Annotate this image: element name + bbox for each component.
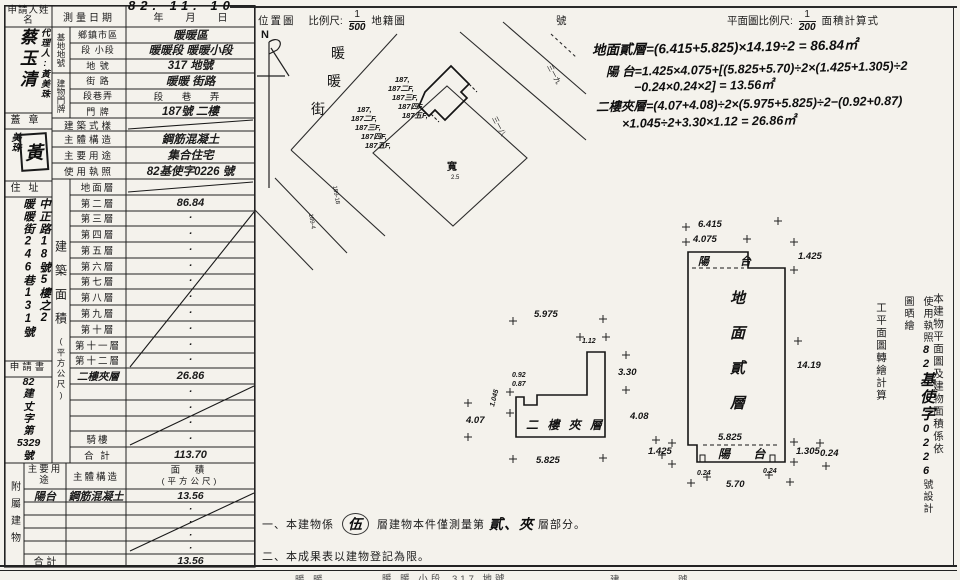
annex-header-use: 主要用途 <box>24 463 66 489</box>
note-1-middle: 層建物本件僅測量第 <box>377 516 485 532</box>
mezzanine-room-label: 二 樓 夾 層 <box>526 418 605 432</box>
area-group-unit: (平方公尺) <box>55 336 67 402</box>
plan-scale-denominator: 200 <box>799 22 816 33</box>
land-rows: 鄉鎮市區 暖暖區 段 小段 暖暖段 暖暖小段 地 號 317 地號 <box>70 27 255 73</box>
area-row: 第十層 · <box>70 321 255 337</box>
info-row: 建築式樣 <box>52 118 255 131</box>
area-row: 合 計 113.70 <box>70 447 255 463</box>
area-row-value: · <box>126 417 255 429</box>
dim-main-left-bottom: 1.425 <box>648 446 672 457</box>
area-row-label: 第八層 <box>70 290 126 304</box>
info-row-label: 使用執照 <box>52 164 126 178</box>
note-1-prefix: 一、本建物係 <box>262 516 334 532</box>
dim-mezz-top: 5.975 <box>534 309 558 320</box>
land-row-value: 317 地號 <box>126 57 255 73</box>
area-row: 第五層 · <box>70 242 255 258</box>
appno-part: 號 <box>23 451 34 462</box>
land-row: 鄉鎮市區 暖暖區 <box>70 27 255 42</box>
area-row-label: 第十一層 <box>70 338 126 352</box>
door-row: 段巷弄 段 巷 弄 <box>70 88 255 103</box>
annex-row-use: 合 計 <box>24 553 66 568</box>
door-row-value: 暖暖 街路 <box>126 73 255 89</box>
door-row-value: 段 巷 弄 <box>126 89 255 103</box>
area-row: 二樓夾層 26.86 <box>70 368 255 384</box>
land-row: 地 號 317 地號 <box>70 58 255 73</box>
area-row: 第九層 · <box>70 305 255 321</box>
door-row-label: 街 路 <box>70 74 126 87</box>
area-row-value: · <box>126 212 255 224</box>
area-row-value: · <box>126 275 255 287</box>
door-rows: 街 路 暖暖 街路 段巷弄 段 巷 弄 門 牌 187號 二樓 <box>70 73 255 118</box>
survey-date-label: 測量日期 <box>52 6 126 26</box>
area-row-value: · <box>126 228 255 240</box>
info-row-label: 建築式樣 <box>52 118 126 132</box>
seal-area: 美珠 黃 <box>5 128 52 180</box>
area-row: 地面層 <box>70 179 255 195</box>
note-1-floor-count: 伍 <box>342 513 369 535</box>
parcel-label: 187五F, <box>365 141 391 150</box>
north-indicator <box>257 40 289 188</box>
main-room-char-4: 層 <box>729 395 747 412</box>
land-row-label: 段 小段 <box>70 43 126 56</box>
survey-form-sheet: 82. 11. 10 測量日期 年 月 日 申請人姓名 代理人:黃美珠 蔡玉清 … <box>0 0 960 580</box>
application-label: 申請書 <box>5 358 52 374</box>
survey-date-value: 年 月 日 <box>126 6 255 26</box>
side-note-col-2: 使用執照82基使字0226號設計圖晒繪 <box>898 296 937 526</box>
area-row-label: 合 計 <box>70 448 126 462</box>
area-row-label: 第十層 <box>70 322 126 336</box>
annex-header-area-line2: (平方公尺) <box>162 477 220 486</box>
calc-line-1: 地面貳層=(6.415+5.825)×14.19÷2 = 86.84㎡ <box>592 33 858 59</box>
strip-fragment-3: 317 地號 <box>452 571 508 580</box>
floor-plans-svg: 6.415 4.075 1.425 14.19 5.825 1.425 1.30… <box>460 185 860 515</box>
annex-row-area: 13.56 <box>126 490 255 502</box>
dim-mezz-n2: 0.87 <box>512 381 527 388</box>
street-char-2: 暖 <box>327 73 341 89</box>
map-annotation-e: 189-4 <box>307 213 316 230</box>
main-room-char-1: 地 <box>730 290 747 307</box>
annex-row: · <box>24 528 255 541</box>
side-note-year: 82 <box>920 344 932 372</box>
area-row: 騎樓 · <box>70 431 255 447</box>
area-row: 第十一層 · <box>70 337 255 353</box>
note-1-suffix: 層部分。 <box>538 516 586 532</box>
annex-row: · <box>24 502 255 515</box>
main-room-char-3: 貳 <box>729 360 748 377</box>
area-row: 第六層 · <box>70 258 255 274</box>
dim-mezz-left: 4.07 <box>465 415 485 426</box>
door-row-value: 187號 二樓 <box>126 103 255 119</box>
area-row-value: · <box>126 354 255 366</box>
annex-row: 合 計 13.56 <box>24 554 255 567</box>
parcel-label: 187, <box>357 105 372 114</box>
area-row-value: · <box>126 402 255 414</box>
dim-main-top2: 4.075 <box>692 234 717 245</box>
annex-row-area: · <box>126 516 255 528</box>
strip-fragment-2: 暖 暖 小段 <box>382 571 443 580</box>
applicant-name-area: 代理人:黃美珠 蔡玉清 <box>6 28 52 112</box>
area-row: · <box>70 400 255 416</box>
plan-scale-label: 平面圖比例尺: <box>727 15 793 27</box>
annex-row-area: · <box>126 542 255 554</box>
land-row-value: 暖暖段 暖暖小段 <box>126 42 255 58</box>
strip-fragment-5: 號 <box>678 572 691 580</box>
parcel-label: 187二F, <box>351 114 377 123</box>
area-row: 第八層 · <box>70 289 255 305</box>
info-row: 主要用途 集合住宅 <box>52 147 255 163</box>
area-row-value: · <box>126 433 255 445</box>
area-row-label: 第九層 <box>70 306 126 320</box>
main-floor-outline <box>688 252 785 462</box>
area-row-value: · <box>126 307 255 319</box>
dim-main-top: 6.415 <box>698 219 722 230</box>
plan-scale-header: 平面圖比例尺: 1 200 面積計算式 <box>727 10 879 33</box>
area-row-value: 86.84 <box>126 197 255 209</box>
info-row-value: 82基使字0226 號 <box>126 163 255 179</box>
parcel-label: 187五F, <box>402 111 428 120</box>
land-row-value: 暖暖區 <box>126 27 255 43</box>
area-row-value: · <box>126 339 255 351</box>
annex-row-area: · <box>126 529 255 541</box>
map-annotation-d: 189-18 <box>331 185 340 205</box>
area-row: · <box>70 415 255 431</box>
dim-mezz-bottom: 5.825 <box>536 455 560 466</box>
date-month-char: 月 <box>186 9 196 24</box>
address-area: 中正路18號5樓之2 暖暖街246巷131號 <box>6 198 52 354</box>
area-row-label: 第五層 <box>70 243 126 257</box>
seal-stamp: 黃 <box>19 132 50 172</box>
street-char-3: 街 <box>311 101 325 117</box>
annex-header-structure: 主體構造 <box>66 463 126 489</box>
plan-calc-label: 面積計算式 <box>821 15 879 27</box>
annex-row-area: · <box>126 503 255 515</box>
area-row-label: 第二層 <box>70 196 126 210</box>
door-group-label: 建物門牌 <box>52 73 70 118</box>
annex-header-area: 面 積 (平方公尺) <box>126 463 255 489</box>
side-note-license: 使用執照 <box>921 296 932 344</box>
parcel-label: 187三F, <box>355 123 381 132</box>
area-row-value: · <box>126 291 255 303</box>
area-rows: 地面層 第二層 86.84 第三層 · 第四層 · 第五層 · <box>70 179 255 463</box>
map-annotation-b: 三一八 <box>490 115 507 137</box>
dim-main-right-top: 1.425 <box>798 251 822 262</box>
area-row-label: 第六層 <box>70 259 126 273</box>
info-row-label: 主要用途 <box>52 148 126 162</box>
area-row-value: · <box>126 260 255 272</box>
sheet-right-border <box>953 6 954 567</box>
appno-part: 第 <box>23 426 34 437</box>
address-line-2: 暖暖街246巷131號 <box>20 198 36 354</box>
area-row-label: 第四層 <box>70 227 126 241</box>
dim-mezz-right-upper: 3.30 <box>618 367 637 378</box>
door-row: 街 路 暖暖 街路 <box>70 73 255 88</box>
parcel-label: 187二F, <box>388 84 414 93</box>
annex-row: 陽台 鋼筋混凝土 13.56 <box>24 489 255 502</box>
info-row: 主體構造 鋼筋混凝土 <box>52 131 255 147</box>
side-note-col-3: 工平面圖轉繪計算 <box>874 302 889 452</box>
date-day-char: 日 <box>218 9 228 24</box>
annex-rows: 陽台 鋼筋混凝土 13.56 · · · <box>24 489 255 567</box>
north-label: N <box>261 29 269 41</box>
note-2: 二、本成果表以建物登記為限。 <box>262 548 430 564</box>
area-row-label: 第七層 <box>70 274 126 288</box>
appno-part: 丈 <box>23 402 34 413</box>
area-row-label: 騎樓 <box>70 432 126 446</box>
note-1-floors-measured: 貳、夾 <box>489 514 534 534</box>
info-row-label: 主體構造 <box>52 132 126 146</box>
annex-header-area-line1: 面 積 <box>171 466 211 476</box>
date-year-char: 年 <box>154 9 164 24</box>
dim-mezz-right-lower: 4.08 <box>629 411 649 422</box>
dim-main-right-bottom: 1.305 <box>796 446 820 457</box>
calc-line-5: ×1.045÷2+3.30×1.12 = 26.86㎡ <box>622 109 796 132</box>
parcel-label-cluster-2: 187, 187二F, 187三F, 187四F, 187五F, <box>351 105 391 150</box>
area-row-value: 26.86 <box>126 370 255 382</box>
dim-main-right: 14.19 <box>797 360 821 371</box>
area-row-value: 113.70 <box>126 449 255 461</box>
map-annotation-width: 寬 <box>446 160 457 173</box>
area-row-value: · <box>126 386 255 398</box>
side-note-number: 0226 <box>920 423 932 479</box>
area-row-label: 二樓夾層 <box>70 369 126 384</box>
dim-mezz-notch: 1.045 <box>489 389 500 408</box>
address-label: 住址 <box>5 178 52 194</box>
appno-part: 82 <box>23 377 35 388</box>
parcel-label: 187四F, <box>398 102 424 111</box>
plan-scale-fraction: 1 200 <box>799 10 816 33</box>
parcel-label: 187, <box>395 75 410 84</box>
plan-scale-numerator: 1 <box>799 10 816 22</box>
land-row-label: 鄉鎮市區 <box>70 28 126 41</box>
area-row: 第四層 · <box>70 226 255 242</box>
main-balcony-top-label: 陽 台 <box>698 255 765 268</box>
dim-main-bottom: 5.70 <box>726 479 745 490</box>
annex-row: · <box>24 515 255 528</box>
applicant-name: 蔡玉清 <box>14 28 39 112</box>
area-row-label: 地面層 <box>70 180 126 194</box>
area-group-main: 建築面積 <box>53 240 70 336</box>
area-row-label: 第三層 <box>70 211 126 225</box>
area-row: 第七層 · <box>70 274 255 290</box>
appno-part: 建 <box>23 389 34 400</box>
door-row-label: 段巷弄 <box>70 89 126 102</box>
side-note-word: 基使字 <box>918 372 935 423</box>
dim-main-bottom-tick2: 0.24 <box>763 468 777 475</box>
dim-main-bottom-tick1: 0.24 <box>697 470 711 477</box>
parcel-label: 187三F, <box>392 93 418 102</box>
door-row-label: 門 牌 <box>70 105 126 118</box>
dim-mezz-step: 1.12 <box>582 338 596 345</box>
map-annotation-width-value: 2.5 <box>451 175 460 181</box>
land-group-label: 基地地號 <box>52 27 70 73</box>
info-row: 使用執照 82基使字0226 號 <box>52 163 255 179</box>
strip-fragment-1: 暖 暖 <box>295 572 326 580</box>
appno-part: 字 <box>23 414 34 425</box>
land-row: 段 小段 暖暖段 暖暖小段 <box>70 42 255 57</box>
annex-group-label: 附屬建物 <box>6 466 22 564</box>
main-room-char-2: 面 <box>730 325 748 342</box>
address-line-1: 中正路18號5樓之2 <box>36 198 52 354</box>
agent-name: 代理人:黃美珠 <box>39 28 52 112</box>
land-row-label: 地 號 <box>70 59 126 72</box>
sheet-top-border <box>230 6 957 8</box>
area-row: 第二層 86.84 <box>70 195 255 211</box>
strip-fragment-4: 建 <box>610 572 623 580</box>
area-row-label: 第十二層 <box>70 353 126 367</box>
building-info-rows: 建築式樣 主體構造 鋼筋混凝土 主要用途 集合住宅 使用執照 82基使字0226… <box>52 118 255 179</box>
dim-main-inner-bottom: 5.825 <box>718 432 742 443</box>
info-row-value: 鋼筋混凝土 <box>126 131 255 147</box>
area-row-value: · <box>126 244 255 256</box>
appno-part: 5329 <box>17 438 40 449</box>
area-row-value: · <box>126 323 255 335</box>
applicant-label: 申請人姓名 <box>5 6 52 26</box>
note-1: 一、本建物係 伍 層建物本件僅測量第 貳、夾 層部分。 <box>262 513 586 535</box>
application-number: 82 建 丈 字 第 5329 號 <box>5 377 52 461</box>
main-balcony-bottom-label: 陽 台 <box>718 447 775 461</box>
dim-main-right-bottom2: 0.24 <box>820 448 839 459</box>
parcel-label: 187四F, <box>361 132 387 141</box>
area-row: 第三層 · <box>70 211 255 227</box>
area-row: · <box>70 384 255 400</box>
area-row: 第十二層 · <box>70 352 255 368</box>
info-row-value: 集合住宅 <box>126 147 255 163</box>
area-group-label: 建築面積 (平方公尺) <box>52 184 70 458</box>
dim-mezz-n1: 0.92 <box>512 372 526 379</box>
street-char-1: 暖 <box>331 45 345 61</box>
annex-row-area: 13.56 <box>126 555 255 567</box>
seal-label: 蓋章 <box>5 110 52 127</box>
